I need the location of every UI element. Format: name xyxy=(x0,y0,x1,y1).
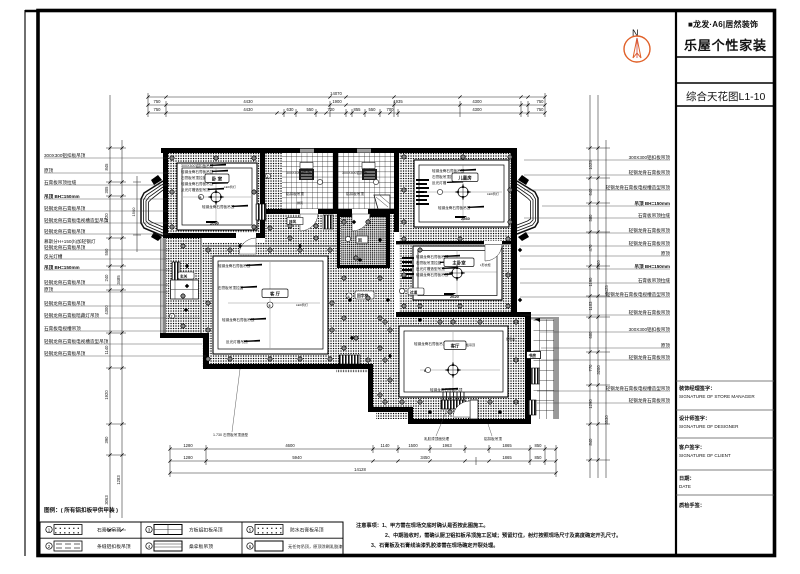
svg-text:550: 550 xyxy=(307,107,315,112)
svg-text:轻钢龙骨石膏板吊顶: 轻钢龙骨石膏板吊顶 xyxy=(416,254,449,259)
svg-text:4300: 4300 xyxy=(472,107,482,112)
svg-text:1963: 1963 xyxy=(442,443,452,448)
svg-text:3530: 3530 xyxy=(604,415,609,425)
svg-text:1290: 1290 xyxy=(588,399,593,409)
svg-text:6: 6 xyxy=(424,369,426,373)
svg-text:4600: 4600 xyxy=(285,443,295,448)
svg-text:1280: 1280 xyxy=(183,443,193,448)
svg-text:845: 845 xyxy=(104,163,109,171)
svg-text:轻钢龙骨石膏板吊顶: 轻钢龙骨石膏板吊顶 xyxy=(181,169,214,174)
svg-text:300X300铝扣板: 300X300铝扣板 xyxy=(342,170,368,175)
svg-text:石膏板吊顶拉缝: 石膏板吊顶拉缝 xyxy=(181,175,207,180)
svg-text:750: 750 xyxy=(537,107,545,112)
svg-text:630: 630 xyxy=(287,107,295,112)
svg-text:DATE: DATE xyxy=(679,484,691,489)
svg-text:300X300铝扣板: 300X300铝扣板 xyxy=(286,170,312,175)
svg-text:470: 470 xyxy=(588,244,593,252)
svg-text:LED筒灯: LED筒灯 xyxy=(224,184,236,189)
svg-text:无任何吊顶，原顶涂刷乳胶漆: 无任何吊顶，原顶涂刷乳胶漆 xyxy=(288,543,342,550)
svg-text:SIGNATURE OF CLIENT: SIGNATURE OF CLIENT xyxy=(679,453,731,458)
svg-text:750: 750 xyxy=(154,107,162,112)
svg-text:1025: 1025 xyxy=(588,160,593,170)
svg-text:轻钢龙骨石膏板吊顶: 轻钢龙骨石膏板吊顶 xyxy=(218,263,251,268)
svg-text:桑拿板吊顶: 桑拿板吊顶 xyxy=(189,543,213,550)
svg-text:卧 室: 卧 室 xyxy=(212,176,223,183)
svg-text:乐屋个性家装: 乐屋个性家装 xyxy=(684,38,767,53)
svg-text:3450: 3450 xyxy=(420,455,430,460)
svg-text:L形衣柜: L形衣柜 xyxy=(480,262,491,267)
svg-text:SIGNATURE OF STORE MANAGER: SIGNATURE OF STORE MANAGER xyxy=(679,394,755,399)
svg-text:SIGNATURE OF DESIGNER: SIGNATURE OF DESIGNER xyxy=(679,424,739,429)
svg-text:1140: 1140 xyxy=(380,443,390,448)
svg-text:3485: 3485 xyxy=(116,275,121,285)
svg-text:850: 850 xyxy=(535,443,543,448)
svg-text:2、中期验收时，需确认厨卫铝扣板吊顶施工区域；预留灯位，射灯: 2、中期验收时，需确认厨卫铝扣板吊顶施工区域；预留灯位，射灯按照现场尺寸及高度确… xyxy=(385,531,621,539)
svg-text:14070: 14070 xyxy=(330,91,342,96)
svg-text:慕斯分H+150(h)加轻钢灯: 慕斯分H+150(h)加轻钢灯 xyxy=(44,238,96,245)
svg-text:客 厅: 客 厅 xyxy=(269,291,281,298)
svg-text:排风: 排风 xyxy=(297,200,303,205)
svg-text:14128: 14128 xyxy=(354,467,366,472)
svg-text:B: B xyxy=(199,196,202,200)
svg-text:750: 750 xyxy=(537,99,545,104)
svg-text:客厅: 客厅 xyxy=(450,343,460,350)
svg-text:铝扣板吊顶: 铝扣板吊顶 xyxy=(286,191,304,196)
svg-text:轻钢龙骨石膏板吊顶: 轻钢龙骨石膏板吊顶 xyxy=(202,204,235,209)
svg-text:石膏板吊顶拉缝: 石膏板吊顶拉缝 xyxy=(218,285,244,290)
svg-text:反光灯槽造型吊顶: 反光灯槽造型吊顶 xyxy=(181,187,210,192)
svg-text:1103: 1103 xyxy=(588,301,593,311)
svg-text:2: 2 xyxy=(267,175,269,179)
svg-text:石膏板吊顶拉缝: 石膏板吊顶拉缝 xyxy=(416,260,442,265)
svg-text:305: 305 xyxy=(104,186,109,194)
svg-text:日期：: 日期： xyxy=(679,474,695,482)
svg-text:7: 7 xyxy=(171,315,173,319)
svg-text:窗帘盒: 窗帘盒 xyxy=(506,336,515,341)
svg-text:240: 240 xyxy=(104,274,109,282)
svg-text:390: 390 xyxy=(104,436,109,444)
svg-text:300X300铝扣板吊顶: 300X300铝扣板吊顶 xyxy=(181,163,214,168)
svg-text:轻钢龙骨石膏板吊顶: 轻钢龙骨石膏板吊顶 xyxy=(222,317,255,322)
svg-text:主卧室: 主卧室 xyxy=(452,260,466,267)
svg-text:1920: 1920 xyxy=(104,390,109,400)
svg-text:装饰经理签字：: 装饰经理签字： xyxy=(679,384,715,392)
svg-text:5: 5 xyxy=(269,304,271,308)
svg-text:850: 850 xyxy=(535,455,543,460)
svg-text:回: 回 xyxy=(358,238,362,243)
svg-text:反光灯槽造型吊顶: 反光灯槽造型吊顶 xyxy=(416,266,445,271)
svg-text:图例：( 所有铝扣板甲供甲装 ): 图例：( 所有铝扣板甲供甲装 ) xyxy=(44,506,118,514)
svg-text:1900: 1900 xyxy=(332,99,342,104)
svg-text:580: 580 xyxy=(588,214,593,222)
svg-text:轻钢龙骨石膏板吊顶: 轻钢龙骨石膏板吊顶 xyxy=(432,168,465,173)
svg-text:反光灯槽: 反光灯槽 xyxy=(432,180,447,185)
svg-text:3200: 3200 xyxy=(596,365,601,375)
svg-text:轻钢龙骨石膏板吊顶: 轻钢龙骨石膏板吊顶 xyxy=(414,341,447,346)
svg-text:过道: 过道 xyxy=(410,290,418,295)
svg-text:1280: 1280 xyxy=(183,455,193,460)
svg-text:条缝铝扣板吊顶: 条缝铝扣板吊顶 xyxy=(97,543,131,550)
svg-text:3、石膏板及石膏线油漆乳胶漆需在现场确定开裂处理。: 3、石膏板及石膏线油漆乳胶漆需在现场确定开裂处理。 xyxy=(371,541,498,549)
svg-text:LED筒灯: LED筒灯 xyxy=(487,191,499,196)
svg-text:■龙发·A6|居然装饰: ■龙发·A6|居然装饰 xyxy=(688,19,758,29)
svg-text:1865: 1865 xyxy=(502,443,512,448)
svg-text:LED筒灯: LED筒灯 xyxy=(296,302,308,307)
svg-text:设计师签字：: 设计师签字： xyxy=(679,414,710,422)
svg-text:4300: 4300 xyxy=(472,99,482,104)
svg-text:综合天花图L1-10: 综合天花图L1-10 xyxy=(686,90,766,103)
svg-text:550: 550 xyxy=(369,107,377,112)
svg-text:1500: 1500 xyxy=(408,443,418,448)
svg-text:客户签字：: 客户签字： xyxy=(678,443,705,451)
svg-text:550: 550 xyxy=(104,248,109,256)
svg-text:注意事项：1、甲方需在现场交底时确认是否按此图施工。: 注意事项：1、甲方需在现场交底时确认是否按此图施工。 xyxy=(356,521,489,529)
svg-text:1865: 1865 xyxy=(502,455,512,460)
svg-text:乳胶漆顶面处理: 乳胶漆顶面处理 xyxy=(424,436,450,441)
svg-text:4430: 4430 xyxy=(243,99,253,104)
svg-text:石膏板吊顶: 石膏板吊顶 xyxy=(97,527,121,534)
svg-text:铝扣板吊顶: 铝扣板吊顶 xyxy=(484,436,502,441)
svg-text:855: 855 xyxy=(354,107,362,112)
svg-text:1190: 1190 xyxy=(588,277,593,287)
svg-text:1.730 石膏板吊顶造型: 1.730 石膏板吊顶造型 xyxy=(213,432,249,437)
svg-text:8: 8 xyxy=(348,295,350,299)
svg-text:轻钢龙骨石膏板吊顶: 轻钢龙骨石膏板吊顶 xyxy=(416,272,449,277)
svg-text:质检手签：: 质检手签： xyxy=(679,501,705,509)
svg-text:1140: 1140 xyxy=(104,345,109,355)
svg-text:轻钢龙骨石膏板吊顶: 轻钢龙骨石膏板吊顶 xyxy=(438,205,471,210)
svg-text:640: 640 xyxy=(588,188,593,196)
svg-text:750: 750 xyxy=(154,99,162,104)
svg-text:1935: 1935 xyxy=(393,99,403,104)
svg-text:3063: 3063 xyxy=(104,495,109,505)
svg-text:720: 720 xyxy=(328,107,336,112)
svg-text:2700: 2700 xyxy=(596,260,601,270)
svg-text:700: 700 xyxy=(387,107,395,112)
svg-text:1283: 1283 xyxy=(116,475,121,485)
svg-text:4430: 4430 xyxy=(243,107,253,112)
svg-text:儿童房: 儿童房 xyxy=(457,175,472,182)
svg-text:玄关: 玄关 xyxy=(180,274,188,279)
svg-text:铝扣板吊顶: 铝扣板吊顶 xyxy=(346,191,364,196)
svg-text:770: 770 xyxy=(588,364,593,372)
svg-text:方板铝扣板吊顶: 方板铝扣板吊顶 xyxy=(189,527,223,534)
svg-text:5940: 5940 xyxy=(292,455,302,460)
svg-text:1500: 1500 xyxy=(131,207,136,217)
svg-text:840: 840 xyxy=(588,438,593,446)
svg-text:书房: 书房 xyxy=(529,353,537,358)
svg-text:防水石膏板吊顶: 防水石膏板吊顶 xyxy=(290,527,324,534)
